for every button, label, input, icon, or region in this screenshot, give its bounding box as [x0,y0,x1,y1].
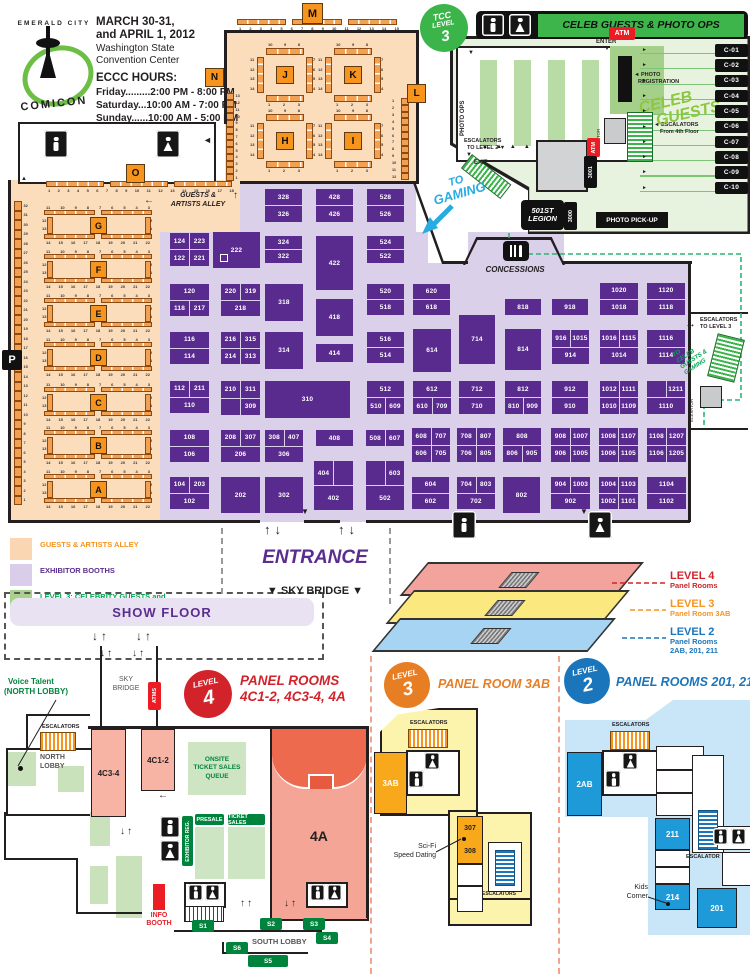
table-numbers: 141516171819202122 [46,504,150,509]
table-numbers: 123 [336,102,368,107]
num: 1 [336,102,338,107]
booth-row: 10121111 [600,381,638,397]
num: 2 [24,489,31,493]
booth-cell-1105: 1105 [619,446,638,463]
booth-cell-704: 704 [457,477,476,493]
num: 13 [42,270,46,275]
num: 8 [115,188,117,193]
north-lobby-label1: NORTH [40,754,65,762]
num: 14 [46,240,50,245]
alley-row-A: 111098765431213A21141516171819202122 [42,469,154,509]
booth-cell-210: 210 [221,381,240,398]
wall-table: 13 [14,383,31,391]
booth-cell-508: 508 [366,430,385,446]
num: 2 [283,168,285,173]
num: 3 [366,168,368,173]
num: 7 [313,123,315,128]
booth-cell-818: 818 [505,299,541,315]
booth-row: 502 [366,486,404,510]
wall-table: 29 [14,231,31,239]
num: 10 [336,108,340,113]
num: 9 [236,121,243,125]
num: 4 [77,188,79,193]
booth-cell-516: 516 [367,332,404,347]
num: 13 [318,142,322,147]
voice-talent-label2: (NORTH LOBBY) [4,688,68,697]
booth-cell-110: 110 [170,398,209,414]
num: 11 [318,123,322,128]
womens-restroom-icon [160,840,180,862]
num: 20 [121,504,125,509]
num: 17 [83,328,87,333]
booth-cell-705: 705 [432,446,451,463]
booth-cell-214: 214 [221,349,240,365]
atm-badge: ATM [587,138,600,157]
stair-s1: S1 [192,920,214,932]
num: 1 [150,490,152,495]
booth-row: 326 [265,206,302,222]
num: 10 [268,42,272,47]
num: 19 [108,284,112,289]
num: 22 [146,504,150,509]
num: 4 [381,152,383,157]
booth-row: 422 [316,236,353,290]
num: 14 [250,152,254,157]
l2-escalators-label: ESCALATORS [612,722,649,728]
booth-cell-118: 118 [170,301,189,317]
alley-table-side [47,437,53,454]
alley-tables-top [44,298,152,303]
num: 6 [313,67,315,72]
eccc-logo: EMERALD CITY COMICON [14,24,94,116]
booth-row: 918 [552,299,588,315]
table [226,147,234,154]
booth-cell-524: 524 [367,236,404,249]
escalators-l3-label1: ESCALATORS [700,317,737,323]
num: 12 [42,482,46,487]
num: 5 [236,149,243,153]
booth-row: 614 [413,329,451,372]
alley-tables-top [44,430,152,435]
womens-restroom-icon [509,14,531,36]
alley-tables-bottom [44,454,152,459]
num: 6 [96,188,98,193]
booth-cell-510: 510 [367,398,385,414]
island-tables-bottom [334,161,372,168]
booth-row: 1211 [647,381,685,397]
to-gaming-label: TO GAMING [424,168,492,209]
mens-restroom-icon [605,770,621,788]
presale-area [195,827,224,879]
num: 17 [83,460,87,465]
num: 13 [24,384,31,388]
num: 13 [42,358,46,363]
wall-table: 23 [14,288,31,296]
hall-elevator-label: ELEVATOR [690,382,695,422]
booth-620: 620618 [413,284,450,315]
small-booth-square [220,254,228,262]
wall-table: 5 [14,459,31,467]
kids-corner-label1: Kids [608,884,648,892]
booth-row: 110 [170,398,209,414]
booth-cell-1010: 1010 [600,398,619,414]
num: 6 [381,133,383,138]
booth-row: 608707 [412,428,450,445]
num: 20 [121,372,125,377]
booth-cell-218: 218 [221,301,260,317]
table-numbers: 141516171819202122 [46,460,150,465]
booth-422: 422 [316,236,353,290]
arrow-icon: ► [642,109,647,115]
wall-table: 13 [226,94,243,99]
down-arrow-icon: ▼ [604,46,610,53]
atms-badge: ATMS [148,682,161,710]
num: 10 [24,413,31,417]
num: 20 [121,460,125,465]
table [14,220,22,230]
num: 1 [150,403,152,408]
booth-row: 610709 [413,398,451,414]
booth-814: 814 [505,329,541,370]
num: 9 [284,42,286,47]
num: 18 [96,284,100,289]
mens-restroom-icon [44,130,68,158]
booth-414: 414 [316,344,353,362]
booth-1020: 10201018 [600,283,638,315]
legend-label: GUESTS & ARTISTS ALLEY [40,541,139,549]
info-booth-marker [153,884,165,910]
island-tables-right [374,57,381,93]
arrow-icon: ► [642,94,647,100]
island-tables-bottom [334,95,372,102]
booth-512: 512510609 [367,381,404,414]
show-floor-banner: SHOW FLOOR [10,598,314,626]
booth-row: 526 [367,206,404,222]
num: 9 [352,108,354,113]
alley-row-C: 111098765431213C21141516171819202122 [42,382,154,422]
num: 19 [24,327,31,331]
level3-badge: LEVEL 3 [380,658,435,713]
island-section [225,33,418,183]
booth-row: 606705 [412,446,450,463]
num: 16 [71,372,75,377]
booth-cell-116: 116 [170,332,209,348]
womens-restroom-icon [156,130,180,158]
booth-cell-514: 514 [367,348,404,363]
island-tables-top [266,114,304,121]
alley-mid: 1213A21 [42,481,154,496]
booth-cell-1115: 1115 [620,330,639,347]
num: 7 [313,57,315,62]
num: 19 [108,372,112,377]
hours-line: Saturday...10:00 AM - 7:00 PM [96,99,238,112]
booth-cell-122: 122 [170,250,189,266]
num: 6 [313,133,315,138]
booth-row: 216315 [221,332,260,348]
booth-cell-806: 806 [503,446,522,463]
alley-mid: 1213G21 [42,217,154,232]
wall-table: 20 [14,316,31,324]
booth-row: 1120 [647,283,685,299]
booth-1108: 1108120711061205 [647,428,686,462]
womens-restroom-icon [588,511,612,539]
booth-row: 10101109 [600,398,638,414]
booth-row: 210311 [221,381,260,398]
island-tables-top [266,48,304,55]
wall-table: 24 [14,278,31,286]
table-numbers: 1213 [42,438,46,451]
booth-row: 618 [413,300,450,315]
num: 12 [42,262,46,267]
booth-row: 124223 [170,233,209,249]
num: 13 [250,142,254,147]
table-numbers: 123 [268,168,300,173]
num: 8 [298,108,300,113]
booth-cell-328: 328 [265,189,302,205]
alley-tables-top [44,342,152,347]
celeb-booth-C-03: C-03 [715,75,748,88]
alley-title-line1: GUESTS & [156,192,240,200]
booth-row: 426 [316,206,353,222]
booth-604: 604602 [412,477,449,509]
table-numbers: 21 [150,395,152,408]
num: 2 [150,306,152,311]
wall-table: 3 [392,113,409,118]
booth-cell-326: 326 [265,206,302,222]
table [14,496,22,506]
dates-line2: and APRIL 1, 2012 [96,29,195,42]
wall-table: 4 [14,468,31,476]
table [14,467,22,477]
table-numbers: 11121314 [250,123,254,157]
num: 12 [42,438,46,443]
booth-row: 1116 [647,330,685,347]
booth-row: 418 [316,299,353,336]
down-arrow-icon: ▼ [580,508,588,517]
slab-escalator-icon [484,600,525,616]
booth-cell-707: 707 [432,428,451,445]
num: 5 [313,142,315,147]
num: 2 [150,438,152,443]
num: 14 [46,284,50,289]
table [14,296,22,306]
wall-table: 1 [226,175,243,180]
booth-cell-407: 407 [285,430,304,446]
table-numbers: 21 [150,482,152,495]
up-arrow-icon: ↑ [233,190,238,201]
num: 8 [24,432,31,436]
island-tables-left [325,57,332,93]
booth-708: 708807706805 [457,428,495,462]
booth-row: 428 [316,189,353,205]
island-tables-top [334,48,372,55]
womens-restroom-icon [424,752,440,770]
num: 13 [42,226,46,231]
table-numbers: 1213 [42,482,46,495]
table [226,134,234,141]
num: 9 [392,154,399,158]
wall-table: 3 [226,162,243,167]
booth-cell-404: 404 [314,461,333,485]
booth-row: 1118 [647,300,685,316]
booth-row: 516 [367,332,404,347]
table [226,174,234,181]
booth-cell-108: 108 [170,430,209,446]
num: 2 [351,168,353,173]
island-tables-right [374,123,381,159]
arrow-icon: ► [642,48,647,54]
l-wall-tables: 123456789101112 [392,99,409,179]
num: 3 [298,102,300,107]
table-numbers: 141516171819202122 [46,240,150,245]
tcc-elevator-box [604,118,626,144]
booth-210: 210311309 [221,381,260,415]
booth-row: 520 [367,284,404,299]
booth-row: 524 [367,236,404,249]
num: 4 [313,86,315,91]
table [14,268,22,278]
tables [44,454,95,459]
num: 12 [318,67,322,72]
booth-112: 112211110 [170,381,209,413]
left-arrow-icon: ← [144,195,154,206]
tables [101,298,152,303]
island-tables-right [306,123,313,159]
booth-row: 322 [265,250,302,263]
table [14,258,22,268]
num: 17 [83,240,87,245]
ticket-sales-area [228,827,265,879]
booth-row: 603 [366,461,404,485]
num: 17 [83,504,87,509]
booth-cell-1116: 1116 [647,330,685,347]
booth-cell-302: 302 [265,477,303,513]
booth-cell-1118: 1118 [647,300,685,316]
wall-table: 30 [14,221,31,229]
num: 22 [146,372,150,377]
booth-cell-408: 408 [316,430,353,446]
wall-table: 7 [14,440,31,448]
booth-cell-810: 810 [505,398,523,414]
table [401,166,409,173]
alley-row-E: 111098765431213E21141516171819202122 [42,293,154,333]
room-4c3-4: 4C3-4 [91,729,126,817]
num: 9 [284,108,286,113]
booth-row: 10021101 [599,494,638,510]
table [226,140,234,147]
womens-restroom-icon [327,884,342,901]
booth-cell-322: 322 [265,250,302,263]
booth-cell-202: 202 [221,477,260,513]
num: 28 [24,242,31,246]
num: 5 [392,127,399,131]
booth-row: 910 [552,398,588,414]
num: 14 [46,417,50,422]
wall-table: 2 [392,106,409,111]
booth-428: 428426 [316,189,353,222]
num: 3 [298,168,300,173]
table-numbers: 7654 [381,57,383,91]
booth-318: 318 [265,284,303,321]
tables [44,366,95,371]
booth-408: 408 [316,430,353,446]
num: 17 [83,417,87,422]
booth-328: 328326 [265,189,302,222]
down-arrow-icon: ▼ [301,508,309,517]
alley-letter-D: D [90,349,107,366]
num: 16 [71,328,75,333]
logo-top-text: EMERALD CITY [16,20,92,27]
booth-row: 10081107 [599,428,638,445]
celeb-booth-C-06: C-06 [715,121,748,134]
kids-corner-label2: Corner [600,893,648,901]
room-214: 214 [655,884,690,910]
table-numbers: 7654 [313,123,315,157]
arrow-icon: ► [642,140,647,146]
alley-tables-bottom [44,411,152,416]
booth-cell-1111: 1111 [620,381,639,397]
tables [101,210,152,215]
table [14,372,22,382]
booth-row: 108 [170,430,209,446]
booth-row: 10041103 [599,477,638,493]
island-K: 1098123111213147654K [324,47,380,101]
booth-cell-914: 914 [552,348,589,365]
arrow-icon: ► [642,63,647,69]
num: 9 [24,422,31,426]
booth-cell-1107: 1107 [619,428,638,445]
wall-table: 6 [392,133,409,138]
booth-516: 516514 [367,332,404,363]
booth-cell-414: 414 [316,344,353,362]
stair-s5: S5 [248,955,288,967]
table [14,439,22,449]
num: 14 [318,152,322,157]
booth-row: 714 [459,315,495,364]
voice-talent-label1: Voice Talent [8,678,54,687]
booth-cell-1102: 1102 [647,494,686,510]
level-sublabel: 2AB, 201, 211 [670,647,718,655]
booth-cell-904: 904 [551,477,570,493]
entrance-label: ENTRANCE [250,548,380,569]
num: 12 [250,67,254,72]
booth-row: 612 [413,381,451,397]
num: 2 [150,350,152,355]
island-tables-bottom [266,161,304,168]
booth-cell-310: 310 [265,381,350,418]
num: 17 [24,346,31,350]
wall-table: 31 [14,212,31,220]
booth-cell-222: 222 [213,232,260,268]
num: 19 [108,504,112,509]
booth-cell-609: 609 [386,398,404,414]
num: 14 [24,375,31,379]
table-numbers: 1213 [42,262,46,275]
table-numbers: 1213 [42,395,46,408]
num: 15 [58,460,62,465]
booth-cell-217: 217 [190,301,209,317]
table [226,127,234,134]
kids-corner-dot [666,902,670,906]
mens-restroom-icon [482,14,504,36]
booth-row: 106 [170,447,209,463]
wall-table: 32 [14,202,31,210]
booth-cell-528: 528 [367,189,404,205]
num: 14 [46,504,50,509]
table [14,230,22,240]
table [14,325,22,335]
booth-cell-712: 712 [459,381,495,397]
